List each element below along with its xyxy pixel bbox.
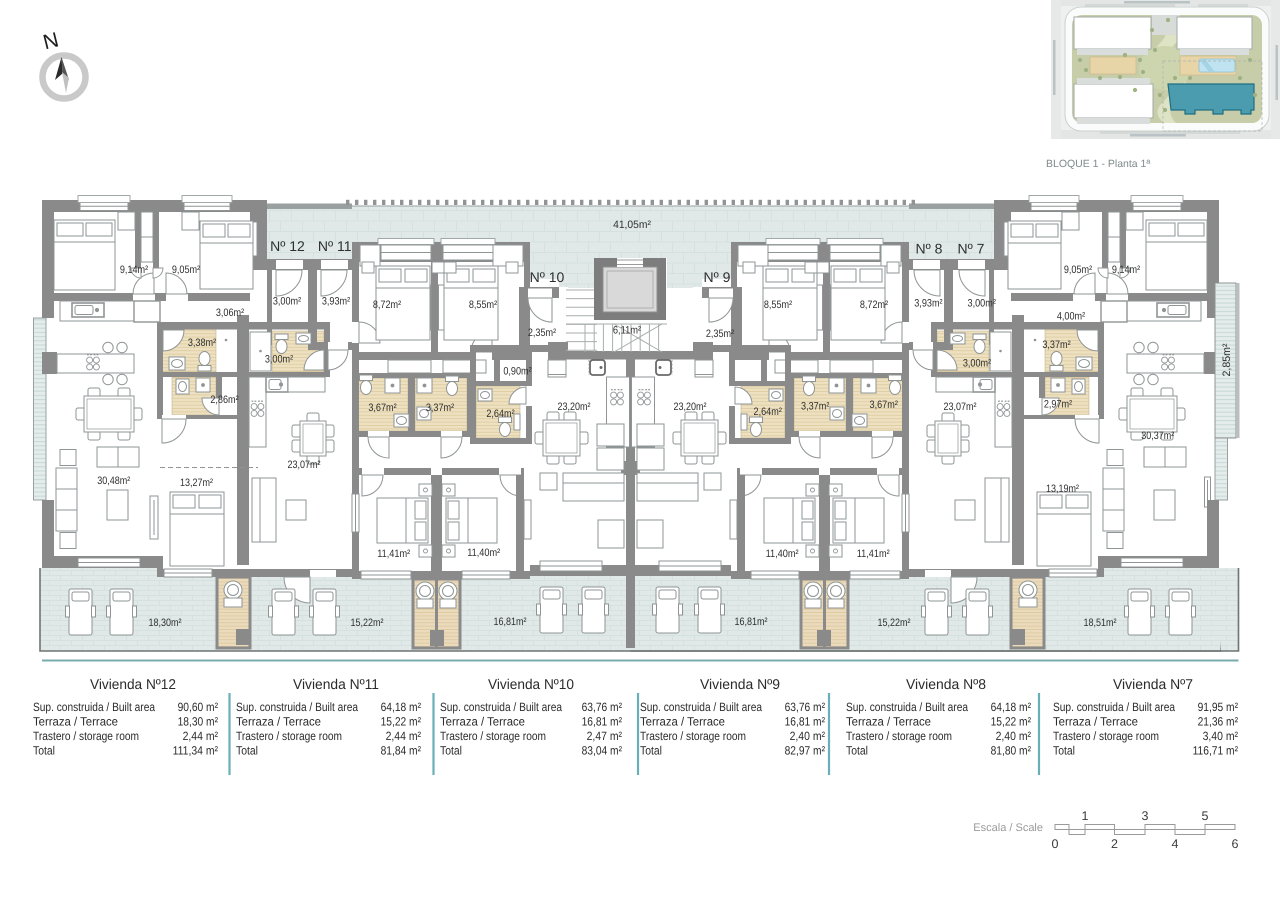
svg-text:81,84 m²: 81,84 m² [381,744,421,758]
svg-text:3,40 m²: 3,40 m² [1203,729,1238,743]
svg-text:23,20m²: 23,20m² [558,401,591,413]
svg-text:Terraza / Terrace: Terraza / Terrace [33,715,118,729]
svg-text:16,81 m²: 16,81 m² [785,715,825,729]
svg-text:11,41m²: 11,41m² [857,548,890,560]
svg-text:Nº 8: Nº 8 [916,241,943,257]
svg-text:Sup. construida / Built area: Sup. construida / Built area [640,700,762,714]
svg-text:23,20m²: 23,20m² [674,401,707,413]
svg-text:Total: Total [846,744,868,758]
svg-text:3,38m²: 3,38m² [188,337,217,349]
svg-text:16,81m²: 16,81m² [735,616,768,628]
svg-text:1: 1 [1082,809,1089,823]
svg-text:11,41m²: 11,41m² [377,548,410,560]
svg-text:6,11m²: 6,11m² [613,325,642,337]
svg-text:Terraza / Terrace: Terraza / Terrace [236,715,321,729]
svg-text:8,55m²: 8,55m² [469,299,498,311]
svg-text:41,05m²: 41,05m² [613,219,651,231]
svg-text:8,55m²: 8,55m² [764,299,793,311]
svg-text:Vivienda Nº8: Vivienda Nº8 [906,677,986,693]
svg-text:90,60 m²: 90,60 m² [178,700,218,714]
svg-text:16,81m²: 16,81m² [494,616,527,628]
svg-text:3,37m²: 3,37m² [801,401,830,413]
svg-text:Trastero / storage room: Trastero / storage room [440,729,546,743]
svg-text:30,48m²: 30,48m² [97,475,130,487]
svg-text:Vivienda Nº12: Vivienda Nº12 [90,677,176,693]
svg-text:3,00m²: 3,00m² [963,358,992,370]
svg-text:2,40 m²: 2,40 m² [996,729,1031,743]
svg-text:82,97 m²: 82,97 m² [785,744,825,758]
svg-text:Trastero / storage room: Trastero / storage room [1053,729,1159,743]
svg-text:15,22m²: 15,22m² [878,617,911,629]
svg-text:Vivienda Nº10: Vivienda Nº10 [488,677,574,693]
svg-text:Total: Total [1053,744,1075,758]
svg-text:3,67m²: 3,67m² [870,399,899,411]
svg-text:3,93m²: 3,93m² [322,296,351,308]
svg-text:9,14m²: 9,14m² [120,264,149,276]
svg-text:23,07m²: 23,07m² [288,459,321,471]
svg-text:Trastero / storage room: Trastero / storage room [846,729,952,743]
svg-text:6: 6 [1232,837,1239,851]
svg-text:Sup. construida / Built area: Sup. construida / Built area [1053,700,1175,714]
svg-text:3,37m²: 3,37m² [426,402,455,414]
svg-text:3,93m²: 3,93m² [914,298,943,310]
svg-text:81,80 m²: 81,80 m² [991,744,1031,758]
svg-text:11,40m²: 11,40m² [766,548,799,560]
svg-text:Nº 12: Nº 12 [270,238,305,254]
svg-text:2,35m²: 2,35m² [528,327,557,339]
svg-text:3,00m²: 3,00m² [265,354,294,366]
svg-text:3,00m²: 3,00m² [968,298,997,310]
svg-text:Nº 11: Nº 11 [318,238,352,254]
svg-text:Trastero / storage room: Trastero / storage room [236,729,342,743]
svg-text:Total: Total [33,744,55,758]
svg-text:15,22m²: 15,22m² [351,617,384,629]
svg-text:5: 5 [1202,809,1209,823]
svg-text:4: 4 [1172,837,1179,851]
svg-text:18,30 m²: 18,30 m² [178,715,218,729]
svg-text:8,72m²: 8,72m² [860,299,889,311]
svg-text:63,76 m²: 63,76 m² [785,700,825,714]
svg-text:Vivienda Nº9: Vivienda Nº9 [700,677,780,693]
svg-text:2,97m²: 2,97m² [1044,399,1073,411]
svg-text:9,14m²: 9,14m² [1112,264,1141,276]
svg-text:Escala / Scale: Escala / Scale [973,822,1043,834]
svg-text:Trastero / storage room: Trastero / storage room [33,729,139,743]
svg-text:Trastero / storage room: Trastero / storage room [640,729,746,743]
svg-text:Vivienda Nº7: Vivienda Nº7 [1113,677,1193,693]
svg-text:83,04 m²: 83,04 m² [582,744,622,758]
svg-text:9,05m²: 9,05m² [1064,264,1093,276]
svg-text:2,64m²: 2,64m² [486,408,515,420]
svg-text:Sup. construida / Built area: Sup. construida / Built area [33,700,155,714]
svg-text:30,37m²: 30,37m² [1141,430,1174,442]
svg-text:Terraza / Terrace: Terraza / Terrace [846,715,931,729]
svg-text:64,18 m²: 64,18 m² [991,700,1031,714]
svg-text:3,67m²: 3,67m² [368,402,397,414]
svg-text:3,00m²: 3,00m² [273,296,302,308]
svg-text:3,06m²: 3,06m² [216,307,245,319]
svg-text:3: 3 [1142,809,1149,823]
svg-text:2,44 m²: 2,44 m² [386,729,421,743]
svg-text:0,90m²: 0,90m² [503,366,532,378]
svg-text:Terraza / Terrace: Terraza / Terrace [440,715,525,729]
svg-text:2,40 m²: 2,40 m² [790,729,825,743]
svg-text:63,76 m²: 63,76 m² [582,700,622,714]
svg-text:2,64m²: 2,64m² [754,406,783,418]
svg-text:Nº 10: Nº 10 [530,269,565,285]
svg-text:15,22 m²: 15,22 m² [381,715,421,729]
svg-text:Total: Total [440,744,462,758]
svg-text:2,47 m²: 2,47 m² [587,729,622,743]
svg-text:2,35m²: 2,35m² [706,328,735,340]
svg-text:Total: Total [236,744,258,758]
svg-text:91,95 m²: 91,95 m² [1198,700,1238,714]
svg-text:8,72m²: 8,72m² [373,299,402,311]
svg-text:Nº 7: Nº 7 [958,241,985,257]
svg-text:116,71 m²: 116,71 m² [1193,744,1238,758]
svg-text:Total: Total [640,744,662,758]
svg-text:2,86m²: 2,86m² [210,394,239,406]
svg-text:0: 0 [1052,837,1059,851]
svg-text:Vivienda Nº11: Vivienda Nº11 [293,677,379,693]
svg-text:3,37m²: 3,37m² [1042,339,1071,351]
svg-text:BLOQUE 1 - Planta 1ª: BLOQUE 1 - Planta 1ª [1046,158,1150,170]
svg-text:18,51m²: 18,51m² [1084,617,1117,629]
svg-text:Sup. construida / Built area: Sup. construida / Built area [440,700,562,714]
svg-text:16,81 m²: 16,81 m² [582,715,622,729]
svg-text:2: 2 [1111,837,1118,851]
svg-text:2,85m²: 2,85m² [1221,343,1233,376]
svg-text:9,05m²: 9,05m² [172,264,201,276]
svg-text:15,22 m²: 15,22 m² [991,715,1031,729]
svg-text:Sup. construida / Built area: Sup. construida / Built area [236,700,358,714]
svg-text:111,34 m²: 111,34 m² [173,744,218,758]
svg-text:Terraza / Terrace: Terraza / Terrace [640,715,725,729]
svg-text:13,27m²: 13,27m² [180,477,213,489]
svg-text:64,18 m²: 64,18 m² [381,700,421,714]
svg-text:Sup. construida / Built area: Sup. construida / Built area [846,700,968,714]
svg-text:21,36 m²: 21,36 m² [1198,715,1238,729]
svg-text:4,00m²: 4,00m² [1057,311,1086,323]
svg-text:Nº 9: Nº 9 [704,269,731,285]
svg-text:13,19m²: 13,19m² [1046,483,1079,495]
svg-text:18,30m²: 18,30m² [149,617,182,629]
svg-text:23,07m²: 23,07m² [944,401,977,413]
svg-text:Terraza / Terrace: Terraza / Terrace [1053,715,1138,729]
svg-text:11,40m²: 11,40m² [467,547,500,559]
svg-text:2,44 m²: 2,44 m² [183,729,218,743]
